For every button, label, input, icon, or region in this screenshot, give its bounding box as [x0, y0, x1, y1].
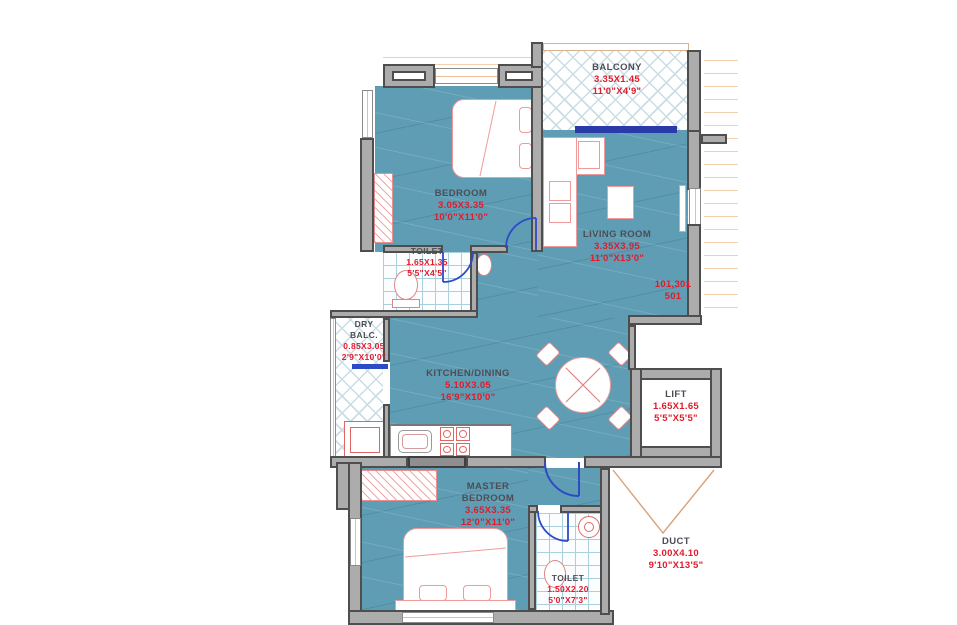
wall-niche	[505, 71, 533, 81]
wall	[687, 50, 701, 134]
room-name: BALC.	[342, 330, 386, 341]
living-room-window	[689, 188, 701, 226]
room-name: BEDROOM	[434, 188, 488, 200]
bedroom-side-window	[362, 90, 373, 138]
room-dim-m: 0.85X3.05	[342, 341, 386, 352]
wardrobe	[361, 470, 437, 501]
stove-burner	[440, 443, 454, 457]
stove-burner	[456, 443, 470, 457]
room-dim-ft: 5'5"X4'5"	[406, 268, 447, 279]
dining-table	[555, 357, 611, 413]
sofa-cushion	[549, 203, 571, 223]
room-dim-ft: 5'0"X7'3"	[547, 595, 588, 606]
sofa-cushion	[578, 141, 600, 169]
master-bedroom-bottom-window	[402, 612, 494, 623]
master-bedroom-label: MASTER BEDROOM 3.65X3.35 12'0"X11'0"	[461, 481, 515, 529]
room-dim-m: 3.65X3.35	[461, 505, 515, 517]
room-dim-ft: 12'0"X11'0"	[461, 517, 515, 529]
room-name: LIFT	[653, 389, 699, 401]
room-name: DUCT	[649, 536, 704, 548]
room-name: BALCONY	[592, 62, 642, 74]
room-name: TOILET	[406, 246, 447, 257]
wall	[531, 42, 543, 68]
wardrobe	[374, 173, 393, 243]
room-name: KITCHEN/DINING	[426, 368, 510, 380]
wall-bedroom-living	[531, 86, 543, 252]
sofa-cushion	[549, 181, 571, 201]
master-bedroom-window	[350, 518, 361, 566]
wall	[628, 325, 636, 370]
bedroom-label: BEDROOM 3.05X3.35 10'0"X11'0"	[434, 188, 488, 224]
wall	[466, 456, 546, 468]
wall-kitchen-top	[330, 310, 478, 318]
unit-numbers: 101,301 501	[655, 279, 691, 303]
room-name: DRY	[342, 319, 386, 330]
master-bedroom-nook-floor	[528, 468, 602, 505]
dry-balcony-door	[352, 364, 388, 369]
balcony-slider-door	[575, 126, 677, 133]
lift-label: LIFT 1.65X1.65 5'5"X5'5"	[653, 389, 699, 425]
room-dim-m: 3.35X3.95	[583, 241, 651, 253]
dry-balcony-label: DRY BALC. 0.85X3.05 2'9"X10'0"	[342, 319, 386, 363]
dry-balcony-rail	[330, 318, 336, 458]
balcony-label: BALCONY 3.35X1.45 11'0"X4'9"	[592, 62, 642, 98]
washbasin	[476, 254, 492, 276]
kitchen-dining-label: KITCHEN/DINING 5.10X3.05 16'9"X10'0"	[426, 368, 510, 404]
pillow	[463, 585, 491, 601]
pillow	[419, 585, 447, 601]
wall	[687, 224, 701, 325]
room-name: BEDROOM	[461, 493, 515, 505]
toilet-2-label: TOILET 1.50X2.20 5'0"X7'3"	[547, 573, 588, 606]
room-dim-ft: 16'9"X10'0"	[426, 392, 510, 404]
floor-plan: BALCONY 3.35X1.45 11'0"X4'9" BEDROOM 3.0…	[0, 0, 957, 625]
room-dim-m: 1.50X2.20	[547, 584, 588, 595]
room-dim-m: 3.35X1.45	[592, 74, 642, 86]
stove	[440, 427, 470, 456]
wall	[470, 252, 478, 312]
bedroom-window	[435, 68, 498, 84]
room-dim-m: 1.65X1.35	[406, 257, 447, 268]
room-dim-m: 1.65X1.65	[653, 401, 699, 413]
wall-lobby	[628, 315, 702, 325]
room-name: TOILET	[547, 573, 588, 584]
lift-wall-top	[630, 368, 722, 380]
lift-wall-right	[710, 368, 722, 458]
coffee-table	[607, 186, 634, 219]
exterior-hatch-lines	[704, 60, 738, 315]
room-dim-ft: 11'0"X13'0"	[583, 253, 651, 265]
stove-burner	[440, 427, 454, 441]
washing-machine-drum	[350, 427, 380, 453]
lift-wall-bottom	[630, 446, 722, 458]
unit-numbers-line2: 501	[655, 291, 691, 303]
washbasin	[578, 516, 600, 538]
room-name: MASTER	[461, 481, 515, 493]
wall	[360, 138, 374, 252]
room-dim-ft: 9'10"X13'5"	[649, 560, 704, 572]
room-dim-ft: 2'9"X10'0"	[342, 352, 386, 363]
room-dim-ft: 10'0"X11'0"	[434, 212, 488, 224]
wall	[528, 505, 538, 513]
wall-stub	[701, 134, 727, 144]
wall-niche	[392, 71, 426, 81]
room-dim-m: 3.05X3.35	[434, 200, 488, 212]
wall	[687, 130, 701, 190]
kitchen-sink	[398, 430, 432, 453]
duct-label: DUCT 3.00X4.10 9'10"X13'5"	[649, 536, 704, 572]
unit-numbers-line1: 101,301	[655, 279, 691, 291]
stove-burner	[456, 427, 470, 441]
duct-lines	[613, 470, 714, 533]
toilet-1-label: TOILET 1.65X1.35 5'5"X4'5"	[406, 246, 447, 279]
room-dim-ft: 5'5"X5'5"	[653, 413, 699, 425]
living-room-label: LIVING ROOM 3.35X3.95 11'0"X13'0"	[583, 229, 651, 265]
wall	[383, 404, 390, 458]
room-name: LIVING ROOM	[583, 229, 651, 241]
tv-unit	[679, 185, 686, 232]
wc-tank	[392, 299, 420, 308]
balcony-railing	[543, 43, 689, 51]
master-bedroom-door-sill	[408, 456, 466, 468]
room-dim-m: 3.00X4.10	[649, 548, 704, 560]
wall-toilet-2-left	[528, 505, 536, 610]
room-dim-ft: 11'0"X4'9"	[592, 86, 642, 98]
lift-wall-left	[630, 368, 642, 458]
room-dim-m: 5.10X3.05	[426, 380, 510, 392]
wall-duct-left	[600, 468, 610, 615]
